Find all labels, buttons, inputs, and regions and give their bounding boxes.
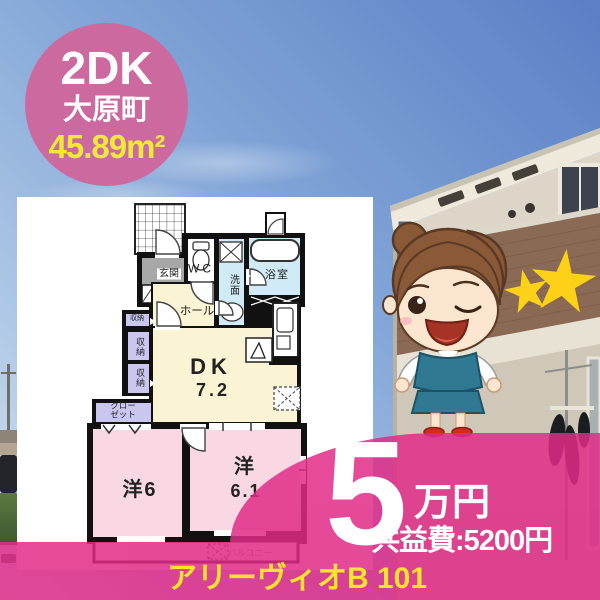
listing-promo-image: 玄関 WC 洗面 浴室 ホール 収納 収納 収納 クロー ゼット DK 7.2 … xyxy=(0,0,600,600)
label-washroom: 洗面 xyxy=(228,274,239,296)
label-dk-size: 7.2 xyxy=(196,381,230,401)
washer-dashed-icon xyxy=(274,387,300,410)
badge-area: 45.89m² xyxy=(49,129,165,165)
label-storage-3: 収納 xyxy=(134,368,144,388)
kitchen-counter-icon xyxy=(269,303,301,365)
street-scene-strip xyxy=(0,360,17,545)
utility-pole xyxy=(7,364,10,434)
lower-window xyxy=(588,358,600,548)
floor-plan-panel: 玄関 WC 洗面 浴室 ホール 収納 収納 収納 クロー ゼット DK 7.2 … xyxy=(17,197,373,570)
badge-town: 大原町 xyxy=(63,94,150,127)
bathroom-top-door xyxy=(266,213,285,236)
label-toilet: WC xyxy=(188,262,214,275)
refrigerator-icon xyxy=(246,338,272,362)
label-west6: 洋6 xyxy=(122,479,157,501)
property-name: アリーヴィオB 101 xyxy=(167,553,427,597)
agent-character xyxy=(368,215,518,440)
label-dk: DK xyxy=(190,355,232,379)
label-storage-2: 収納 xyxy=(134,337,144,357)
rating-stars xyxy=(500,245,600,325)
shoe xyxy=(424,428,444,437)
label-storage-1: 収納 xyxy=(130,315,144,323)
label-closet: クロー ゼット xyxy=(110,402,136,421)
vest xyxy=(414,353,482,392)
house-roof xyxy=(0,430,17,443)
bushes xyxy=(0,493,17,545)
parked-car xyxy=(0,455,17,493)
badge-layout: 2DK xyxy=(60,44,152,92)
label-bathroom: 浴室 xyxy=(265,269,289,281)
label-west61-size: 6.1 xyxy=(230,482,261,502)
label-hallway: ホール xyxy=(180,306,215,319)
label-entrance: 玄関 xyxy=(157,269,181,280)
listing-badge: 2DK 大原町 45.89m² xyxy=(25,23,188,186)
room-west61 xyxy=(189,428,302,532)
label-west61: 洋 xyxy=(234,456,254,478)
character-body xyxy=(395,351,501,437)
skirt xyxy=(412,391,484,413)
washer-space-icon xyxy=(220,242,242,262)
shoe xyxy=(452,428,472,437)
bathtub-icon xyxy=(251,240,299,261)
